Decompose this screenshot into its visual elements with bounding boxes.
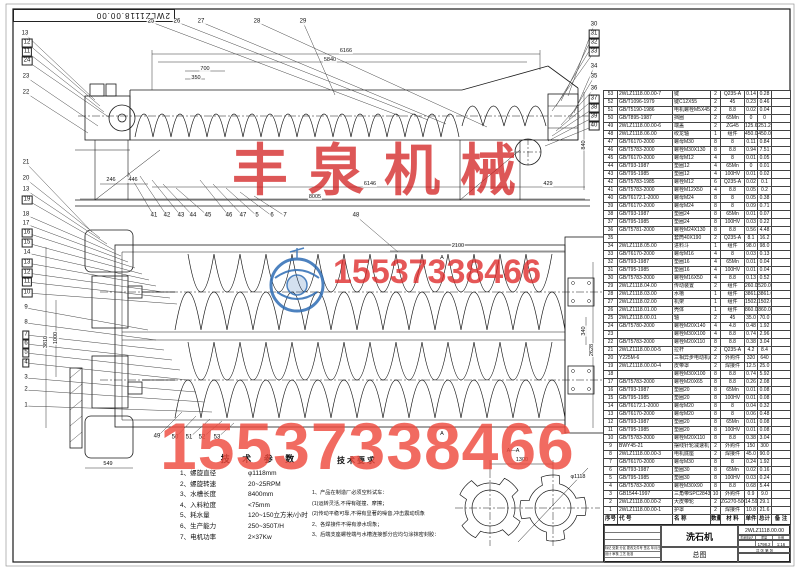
- bom-row: 47GB/T6170-2000螺母M30880.110.84: [604, 139, 791, 147]
- bom-table-body: 532WLZ1118.00.00-7键2Q235-A0.140.2852GB/T…: [604, 91, 791, 525]
- bom-row: 18螺栓M30X10088.80.745.92: [604, 371, 791, 379]
- bom-row: 3GB1544-1997三角带SPC284310外购件0.99.0: [604, 491, 791, 499]
- bom-row: 51GB/T5190-1986电机螺栓M5X4528.80.020.04: [604, 107, 791, 115]
- bom-row: 42GB/T5783-1985螺栓M126Q235-A0.020.1: [604, 179, 791, 187]
- bom-row: 35套筒40X1902Q235-A8.116.2: [604, 235, 791, 243]
- bom-header-row: 序号代 号名 称数量材 料单件总计备 注: [604, 515, 791, 525]
- bom-row: 52GB/T1096-1979键C12X552450.230.46: [604, 99, 791, 107]
- bom-row: 12WLZ1118.00.00-1护罩2焊接件10.821.6: [604, 507, 791, 515]
- product-name: 洗石机: [661, 525, 738, 547]
- bom-row: 46GB/T5783-2000螺栓M30X13088.80.947.51: [604, 147, 791, 155]
- tech-req-line: 3、后端支座螺栓端与水槽连接部分应均匀涂抹密封胶：: [312, 530, 462, 541]
- bom-row: 272WLZ1118.02.00机架1组件1502.01502.0: [604, 299, 791, 307]
- revision-grid: 标记 处数 分区 更改文件号 签名 年月日 设计 审核 工艺 批准: [604, 525, 661, 563]
- bom-row: 50GB/T895-1987挡圈265Mn00: [604, 115, 791, 123]
- tech-requirements: 技术要求 1、产品在制造厂必须空料试车：(1)运转灵活,不得有碰撞、摩擦；(2)…: [312, 455, 462, 541]
- bom-row: 45GB/T6170-2000螺母M12480.010.05: [604, 155, 791, 163]
- tech-req-list: 1、产品在制造厂必须空料试车：(1)运转灵活,不得有碰撞、摩擦；(2)传动平稳可…: [312, 488, 462, 541]
- stage-label: 阶段标记: [739, 536, 756, 539]
- bom-row: 23螺栓M30X10048.80.742.96: [604, 331, 791, 339]
- bom-row: 44GB/T93-1987垫圈12465Mn00.01: [604, 163, 791, 171]
- bom-row: 14GB/T6172.1-2000螺母M20880.040.32: [604, 403, 791, 411]
- bom-row: 11GB/T95-1985垫圈208100HV0.010.08: [604, 427, 791, 435]
- bom-row: 12GB/T93-1987垫圈20865Mn0.010.08: [604, 419, 791, 427]
- tech-req-line: 1、产品在制造厂必须空料试车：: [312, 488, 462, 499]
- bom-table: 532WLZ1118.00.00-7键2Q235-A0.140.2852GB/T…: [603, 90, 791, 525]
- bom-row: 292WLZ1118.04.00传动装置2组件260.0520.0: [604, 283, 791, 291]
- bom-row: 41GB/T5783-2000螺栓M12X5048.80.050.2: [604, 187, 791, 195]
- bom-row: 39GB/T6170-2000螺母M24880.090.71: [604, 203, 791, 211]
- bom-row: 5GB/T95-1985垫圈308100HV0.030.24: [604, 475, 791, 483]
- bom-row: 22GB/T5783-2000螺栓M20X11088.80.383.04: [604, 339, 791, 347]
- corner-drawing-number: 2WLZ1118.00.00: [13, 9, 175, 22]
- scale-label: 比例: [773, 536, 790, 539]
- bom-row: 15GB/T95-1985垫圈208100HV0.010.08: [604, 395, 791, 403]
- bom-row: 262WLZ1118.01.00壳体1组件860.0860.0: [604, 307, 791, 315]
- bom-row: 24GB/T5780-2000螺栓M20X14044.80.481.92: [604, 323, 791, 331]
- bom-row: 13GB/T6170-2000螺母M20880.060.48: [604, 411, 791, 419]
- bom-row: 22WLZ1118.00.00-2大皮带轮2ZG270-50014.5929.1: [604, 499, 791, 507]
- bom-row: 212WLZ1118.00.00-5拉杆2Q235-A4.28.4: [604, 347, 791, 355]
- view-type-label: 总图: [661, 547, 738, 563]
- tech-req-title: 技术要求: [337, 455, 462, 466]
- bom-row: 252WLZ1118.00.01轴24535.070.0: [604, 315, 791, 323]
- title-drawing-number: 2WLZ1118.00.00: [738, 525, 791, 535]
- bom-row: 4GB/T5783-2000螺栓M30X9088.80.685.44: [604, 483, 791, 491]
- bom-row: 30GB/T5783-2000螺栓M16X5048.80.130.52: [604, 275, 791, 283]
- bom-row: 532WLZ1118.00.00-7键2Q235-A0.140.28: [604, 91, 791, 99]
- bom-row: 192WLZ1118.00.00-4皮带罩2焊接件12.525.0: [604, 363, 791, 371]
- bom-row: 282WLZ1118.03.00水槽1组件3861.03861.0: [604, 291, 791, 299]
- bom-row: 16GB/T93-1987垫圈20865Mn0.010.08: [604, 387, 791, 395]
- weight-value: 1798.2: [756, 541, 773, 546]
- bom-row: 82WLZ1118.00.00-3电机底座2焊接件45.090.0: [604, 451, 791, 459]
- title-block: 标记 处数 分区 更改文件号 签名 年月日 设计 审核 工艺 批准 洗石机 总图…: [603, 524, 790, 562]
- bom-row: 9BWY45-21摆线针轮减速机2外购件150300: [604, 443, 791, 451]
- bom-row: 40GB/T6172.1-2000螺母M24880.050.38: [604, 195, 791, 203]
- plan-view: [70, 230, 612, 458]
- stage-values: 1798.2 1:16: [738, 540, 791, 547]
- section-a-a: [455, 460, 600, 546]
- bom-row: 7GB/T6170-2000螺母M30880.241.92: [604, 459, 791, 467]
- bom-row: 482WLZ1118.06.00绞龙轴1组件450.0450.0: [604, 131, 791, 139]
- bom-row: 38GB/T93-1987垫圈24865Mn0.010.07: [604, 211, 791, 219]
- bom-row: 20Y225M-6三相异步电动机/37KW2外购件320640: [604, 355, 791, 363]
- drawing-sheet: 2WLZ1118.00.00 1312112423222526272829303…: [0, 0, 800, 570]
- bom-row: 342WLZ1118.05.00进料斗1组件98.098.0: [604, 243, 791, 251]
- bom-row: 17GB/T5783-2000螺栓M20X6588.80.262.08: [604, 379, 791, 387]
- tech-req-line: (1)运转灵活,不得有碰撞、摩擦；: [312, 499, 462, 510]
- bom-row: 492WLZ1118.00.00-6端盖2ZG45125.6251.2: [604, 123, 791, 131]
- bom-row: 33GB/T6170-2000螺母M16480.030.13: [604, 251, 791, 259]
- bom-row: 31GB/T95-1985垫圈164100HV0.010.04: [604, 267, 791, 275]
- bom-row: 6GB/T93-1987垫圈30865Mn0.020.16: [604, 467, 791, 475]
- bom-row: 10GB/T5783-2000螺栓M20X11088.80.383.04: [604, 435, 791, 443]
- scale-value: 1:16: [773, 541, 790, 546]
- company-logo-watermark: [271, 248, 323, 311]
- bom-row: 43GB/T95-1985垫圈124100HV0.010.02: [604, 171, 791, 179]
- bom-row: 37GB/T95-1985垫圈248100HV0.030.22: [604, 219, 791, 227]
- bom-row: 32GB/T93-1987垫圈16465Mn0.010.04: [604, 259, 791, 267]
- tech-req-line: (2)传动平稳可靠,不得有显著的噪音,冲击震动现象: [312, 509, 462, 520]
- bom-row: 36GB/T5781-2000螺栓M24X13088.80.564.48: [604, 227, 791, 235]
- weight-label: 重量: [756, 536, 773, 539]
- tech-req-line: 2、各焊接件不得有渗水现象；: [312, 520, 462, 531]
